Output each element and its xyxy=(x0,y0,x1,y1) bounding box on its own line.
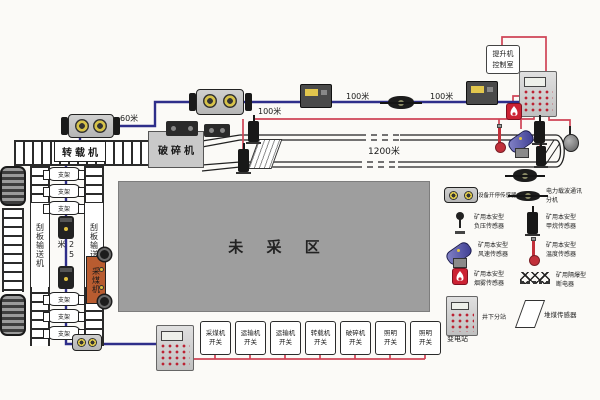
face-cable-node xyxy=(58,216,74,239)
legend-label-line1: 矿用本安型 xyxy=(474,270,504,279)
face-cable-node xyxy=(58,266,74,289)
unmined-area-label: 未 采 区 xyxy=(219,236,328,257)
face-belt-controller xyxy=(72,334,102,351)
switch-box-conveyor1: 运输机开关 xyxy=(235,321,266,355)
belt-controller-cap xyxy=(113,117,120,135)
distance-60m: 60米 xyxy=(120,113,138,124)
legend-pressure-sensor-icon xyxy=(455,212,465,234)
switch-label: 破碎机 xyxy=(346,329,366,338)
legend-label: 矿用隔爆型 断电器 xyxy=(556,271,586,289)
legend-label-line1: 矿用本安型 xyxy=(478,241,508,250)
switch-label: 开关 xyxy=(209,338,222,347)
distance-1200m: 1200米 xyxy=(368,144,400,157)
distance-100m: 100米 xyxy=(430,91,453,102)
switch-label: 照明 xyxy=(419,329,432,338)
shearer-light xyxy=(99,285,104,290)
mine-monitoring-diagram: 刮板输送机 刮板输送机 支架 支架 支架 25米 支架 支架 支架 采煤机 转载… xyxy=(0,0,600,400)
hydraulic-support: 支架 xyxy=(47,167,81,181)
switch-box-conveyor2: 运输机开关 xyxy=(270,321,301,355)
switch-box-loader: 转载机开关 xyxy=(305,321,336,355)
legend-label-line1: 矿用本安型 xyxy=(546,241,576,250)
legend-power-breaker-icon xyxy=(520,272,550,284)
smoke-sensor-icon xyxy=(506,103,522,120)
hydraulic-support: 支架 xyxy=(47,184,81,198)
hydraulic-support: 支架 xyxy=(47,201,81,215)
switch-label: 开关 xyxy=(279,338,292,347)
substation-display xyxy=(524,77,546,87)
switch-box-lighting2: 照明开关 xyxy=(410,321,441,355)
switch-label: 开关 xyxy=(314,338,327,347)
crawler-track-bottom xyxy=(0,294,26,336)
belt-controller-cap xyxy=(189,93,196,111)
shearer-drum-top xyxy=(98,248,111,261)
legend-smoke-sensor-icon xyxy=(452,268,468,285)
legend-label: 矿用本安型 风速传感器 xyxy=(478,241,508,259)
distance-100m: 100米 xyxy=(258,106,281,117)
temperature-sensor-icon xyxy=(494,124,504,153)
switch-label: 开关 xyxy=(349,338,362,347)
distance-25m: 25米 xyxy=(58,240,74,266)
surface-link-box: 提升机 控制室 xyxy=(486,45,520,74)
legend-label: 矿用本安型 温度传感器 xyxy=(546,241,576,259)
legend-label-line2: 分机 xyxy=(546,196,582,205)
substation-display xyxy=(161,331,183,341)
stage-loader-label: 转载机 xyxy=(54,141,106,162)
methane-sensor-icon xyxy=(248,121,259,142)
legend-temperature-sensor-icon xyxy=(528,237,538,266)
unmined-area: 未 采 区 xyxy=(118,181,430,312)
switch-label: 开关 xyxy=(419,338,432,347)
legend-label-line1: 电力载波通讯 xyxy=(546,187,582,196)
legend-substation-icon xyxy=(446,296,478,336)
belt-controller xyxy=(68,114,114,138)
legend-label: 矿用本安型 负压传感器 xyxy=(474,213,504,231)
legend-belt-controller-icon xyxy=(444,187,478,203)
methane-sensor-icon xyxy=(536,146,546,166)
switch-box-lighting1: 照明开关 xyxy=(375,321,406,355)
afc-left-label: 刮板输送机 xyxy=(31,203,49,287)
switch-label: 采煤机 xyxy=(206,329,226,338)
legend-label: 井下分站 xyxy=(482,313,506,322)
switch-box-shearer: 采煤机开关 xyxy=(200,321,231,355)
switch-label: 开关 xyxy=(244,338,257,347)
legend-label: 堆煤传感器 xyxy=(544,311,577,321)
hydraulic-support: 支架 xyxy=(47,292,81,306)
carrier-terminal xyxy=(466,81,498,105)
substation-face xyxy=(156,325,194,371)
shearer-drum-bottom xyxy=(98,295,111,308)
shearer-light xyxy=(99,267,104,272)
substation-keypad xyxy=(451,313,474,332)
switch-label: 开关 xyxy=(384,338,397,347)
surface-link-line2: 控制室 xyxy=(493,60,514,71)
belt-controller xyxy=(196,89,244,115)
methane-sensor-icon xyxy=(238,149,249,172)
legend-label-line1: 矿用本安型 xyxy=(546,213,576,222)
legend-label-line2: 负压传感器 xyxy=(474,222,504,231)
legend-label-line1: 矿用本安型 xyxy=(474,213,504,222)
gate-road-ladder xyxy=(2,208,24,292)
carrier-repeater xyxy=(388,96,414,109)
legend-label-line2: 烟雾传感器 xyxy=(474,279,504,288)
legend-label-line2: 温度传感器 xyxy=(546,250,576,259)
belt-controller-cap xyxy=(245,93,252,111)
legend-wind-sensor-icon xyxy=(444,238,476,268)
switch-label: 运输机 xyxy=(276,329,296,338)
legend-label: 矿用本安型 甲烷传感器 xyxy=(546,213,576,231)
substation-main xyxy=(519,71,557,117)
hydraulic-support: 支架 xyxy=(47,309,81,323)
carrier-repeater xyxy=(513,169,537,182)
legend-label-line2: 甲烷传感器 xyxy=(546,222,576,231)
carbon-monoxide-sensor-icon xyxy=(563,126,577,152)
crawler-track-top xyxy=(0,166,26,206)
wind-speed-sensor-icon xyxy=(506,126,536,158)
legend-label: 矿用本安型 烟雾传感器 xyxy=(474,270,504,288)
belt-controller-cap xyxy=(61,117,68,135)
crusher-drive-unit xyxy=(166,121,198,136)
switch-box-crusher: 破碎机开关 xyxy=(340,321,371,355)
legend-label-line2: 断电器 xyxy=(556,280,586,289)
switch-label: 运输机 xyxy=(241,329,261,338)
substation-keypad xyxy=(524,90,553,113)
legend-label: 电力载波通讯 分机 xyxy=(546,187,582,205)
crusher-label: 破碎机 xyxy=(148,131,204,168)
substation-display xyxy=(451,302,469,310)
carrier-terminal xyxy=(300,84,332,108)
distance-100m: 100米 xyxy=(346,91,369,102)
substation-keypad xyxy=(161,344,190,367)
switch-label: 照明 xyxy=(384,329,397,338)
crusher-drive-unit xyxy=(204,124,230,137)
legend-label-line2: 风速传感器 xyxy=(478,250,508,259)
legend-carrier-repeater-icon xyxy=(516,191,540,201)
legend-methane-sensor-icon xyxy=(527,212,538,234)
switch-label: 转载机 xyxy=(311,329,331,338)
surface-link-line1: 提升机 xyxy=(493,49,514,60)
legend-label-line1: 矿用隔爆型 xyxy=(556,271,586,280)
